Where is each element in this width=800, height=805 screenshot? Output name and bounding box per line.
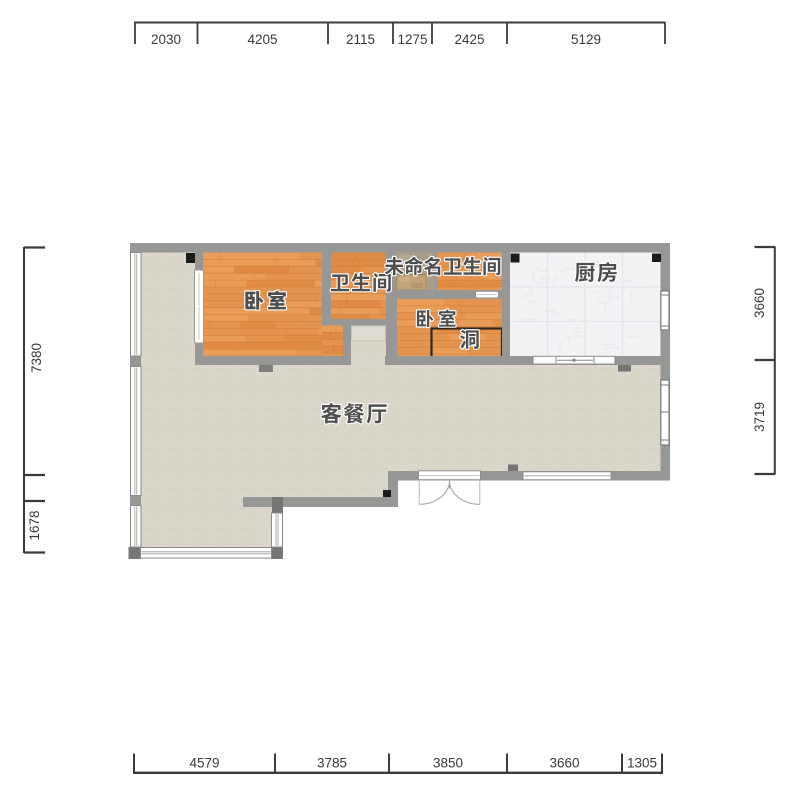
- svg-text:4579: 4579: [189, 756, 219, 771]
- svg-text:2425: 2425: [454, 32, 484, 47]
- svg-text:1678: 1678: [27, 510, 42, 540]
- svg-text:7380: 7380: [29, 343, 44, 373]
- svg-text:3785: 3785: [317, 756, 347, 771]
- svg-text:1305: 1305: [627, 756, 657, 771]
- svg-text:3660: 3660: [549, 756, 579, 771]
- svg-text:4205: 4205: [247, 32, 277, 47]
- svg-text:3850: 3850: [433, 756, 463, 771]
- svg-text:5129: 5129: [571, 32, 601, 47]
- svg-text:3660: 3660: [752, 288, 767, 318]
- svg-text:2115: 2115: [346, 32, 375, 47]
- svg-text:3719: 3719: [752, 402, 767, 432]
- svg-text:1275: 1275: [397, 32, 427, 47]
- svg-text:2030: 2030: [151, 32, 181, 47]
